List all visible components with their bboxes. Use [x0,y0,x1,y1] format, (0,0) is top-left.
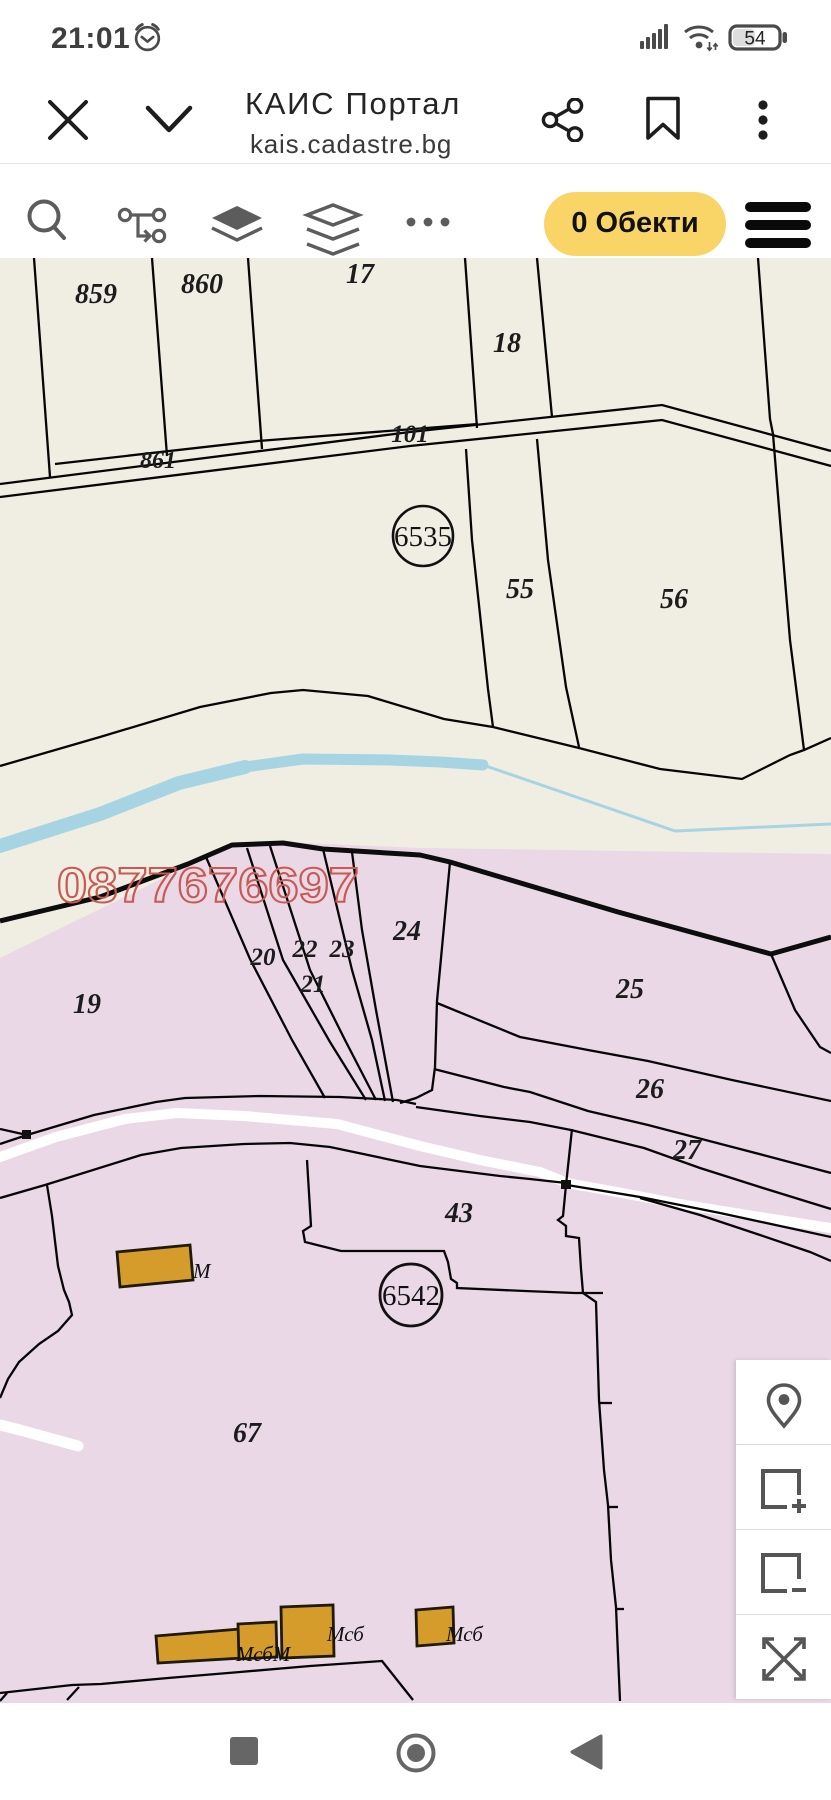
svg-text:Мсб: Мсб [326,1622,365,1646]
svg-text:23: 23 [329,936,355,963]
svg-text:55: 55 [506,574,534,605]
svg-text:26: 26 [635,1074,664,1105]
svg-text:22: 22 [292,936,318,963]
svg-text:24: 24 [392,916,421,947]
svg-text:859: 859 [75,279,117,310]
svg-text:6542: 6542 [382,1280,440,1312]
svg-text:18: 18 [493,328,521,359]
svg-text:6535: 6535 [394,521,452,553]
svg-text:0877676697: 0877676697 [57,859,359,913]
svg-text:Мсб: Мсб [445,1622,484,1646]
svg-text:27: 27 [672,1135,702,1166]
svg-text:861: 861 [140,448,176,474]
svg-text:20: 20 [250,944,277,971]
svg-text:19: 19 [73,989,101,1020]
svg-text:25: 25 [615,974,644,1005]
svg-text:43: 43 [444,1198,473,1229]
svg-text:21: 21 [300,971,326,998]
svg-text:101: 101 [391,421,429,448]
svg-text:МсбМ: МсбМ [235,1642,292,1666]
svg-text:56: 56 [660,584,688,615]
svg-text:54: 54 [744,29,766,50]
svg-text:М: М [192,1259,212,1283]
svg-text:860: 860 [181,269,223,300]
svg-text:17: 17 [346,259,375,290]
svg-text:67: 67 [233,1418,262,1449]
